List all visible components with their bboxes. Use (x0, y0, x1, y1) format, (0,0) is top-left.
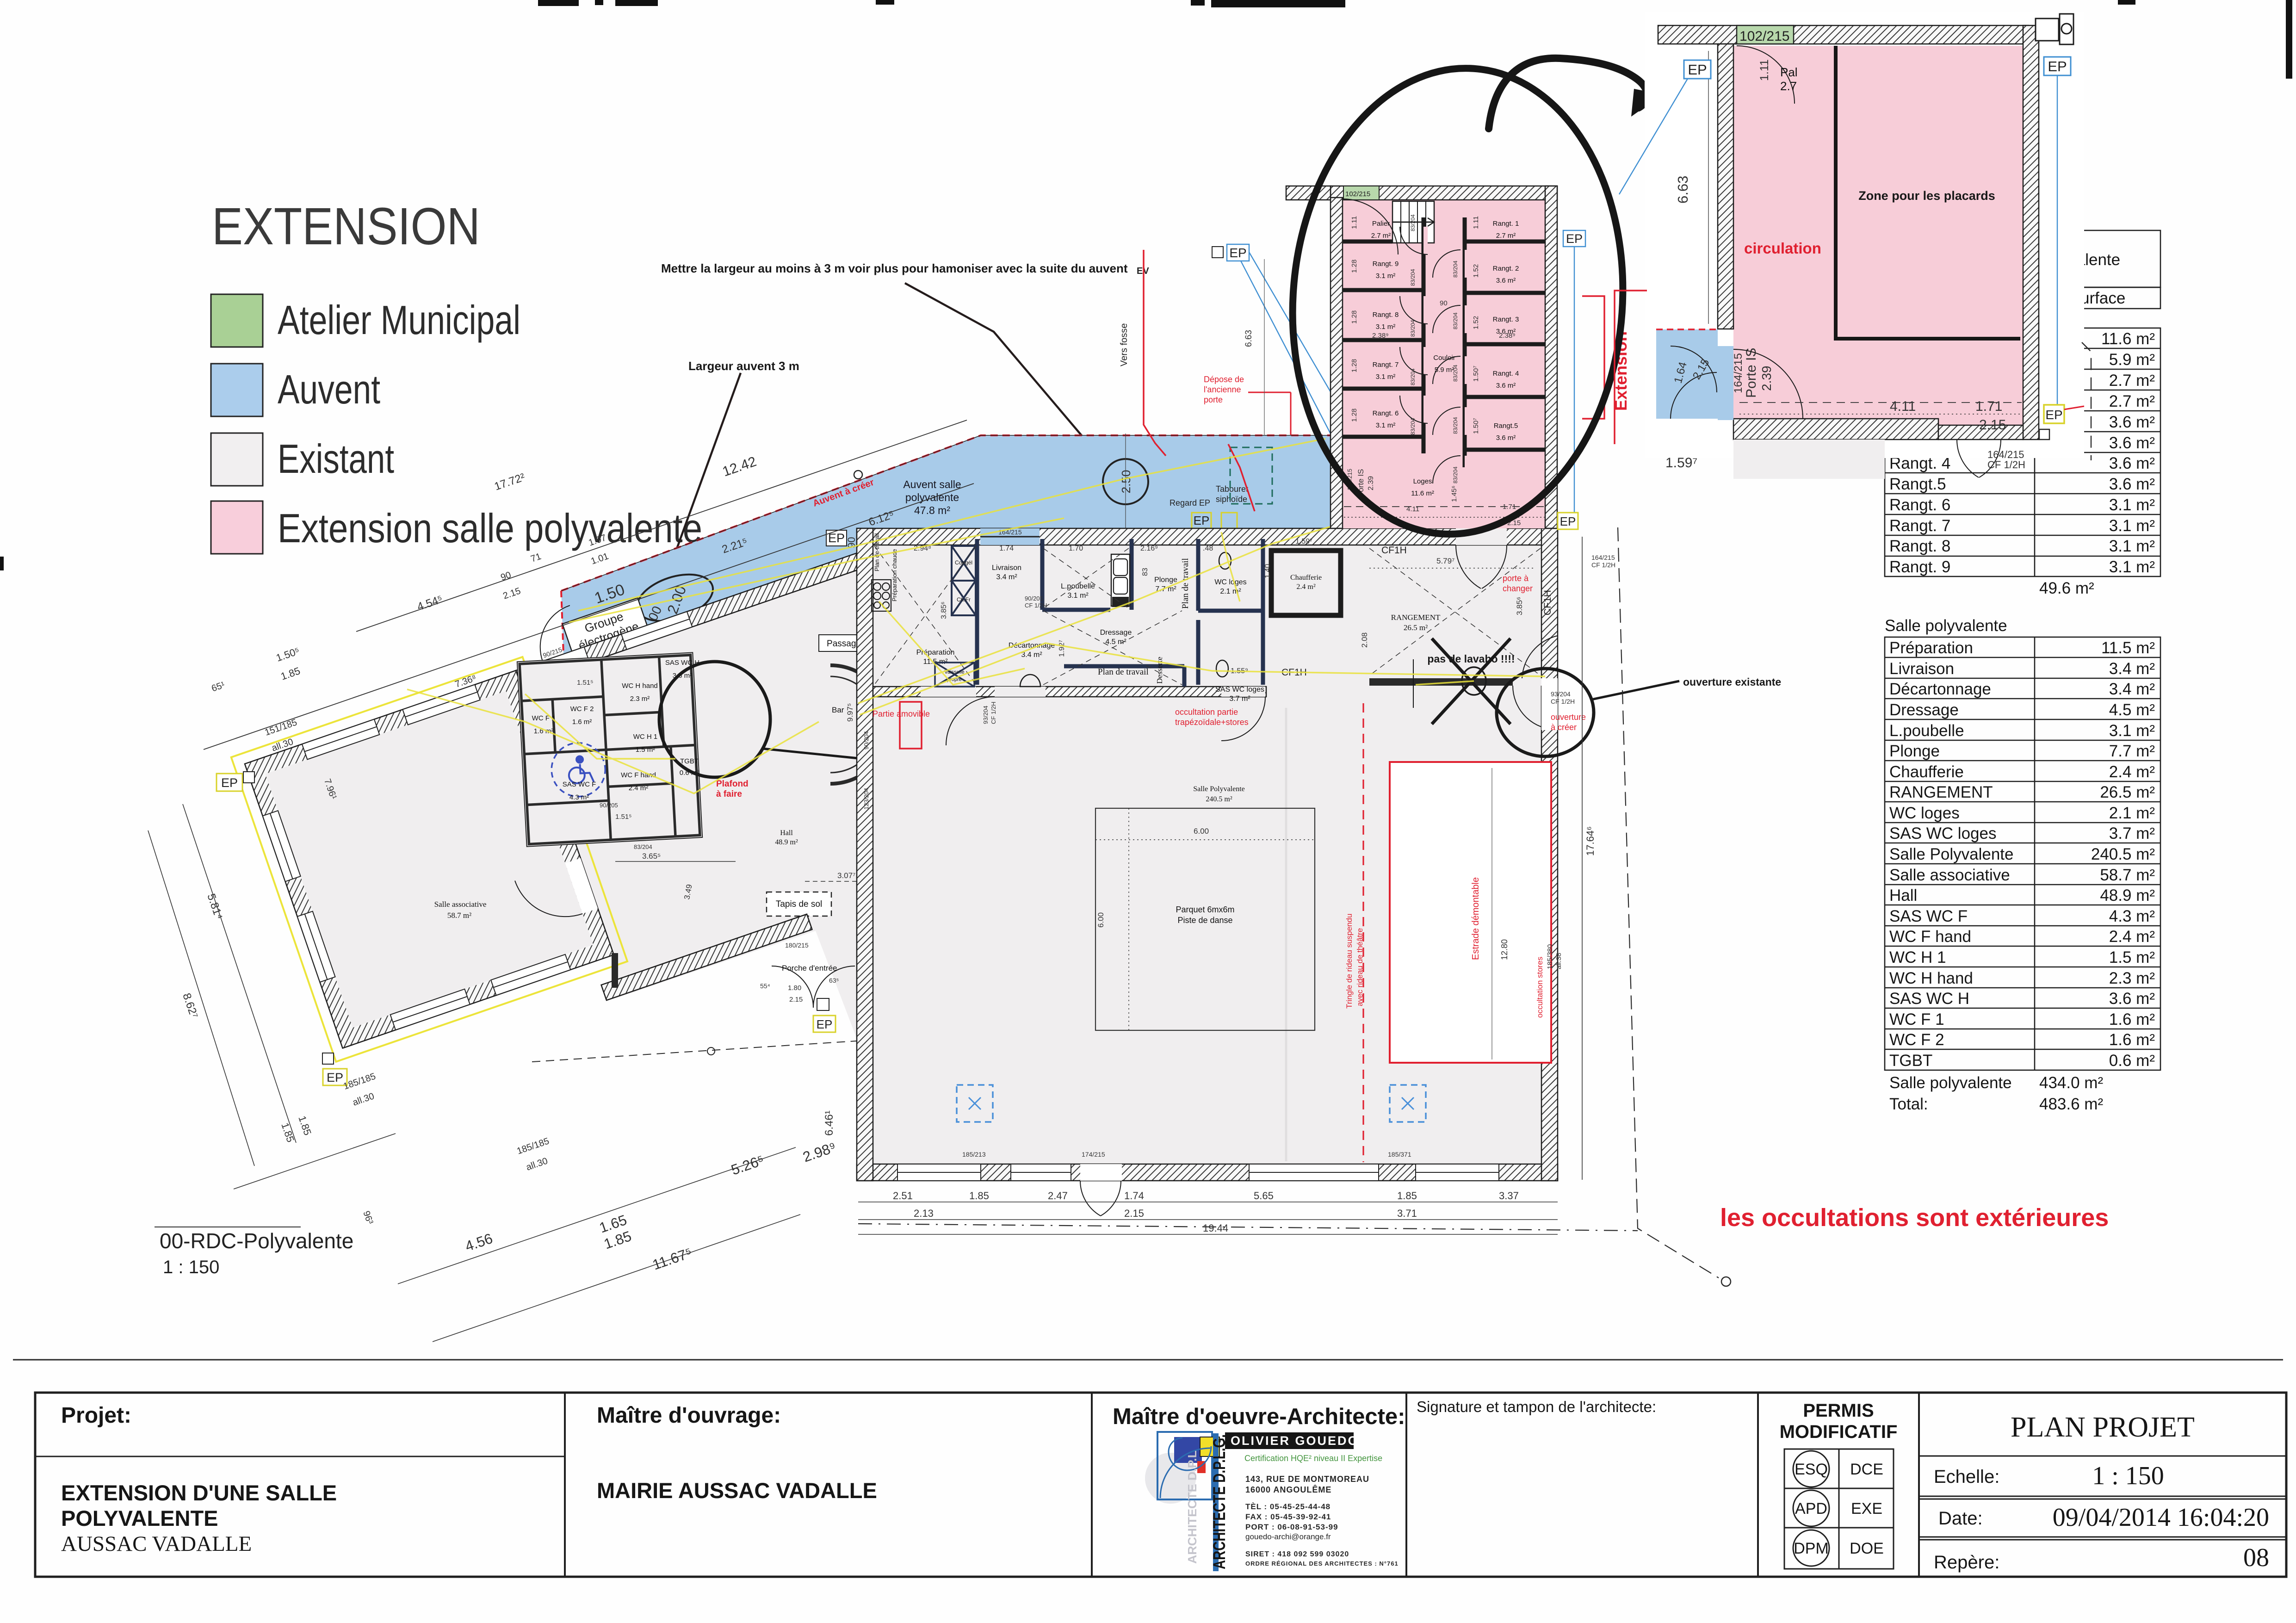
svg-text:2.7: 2.7 (1780, 79, 1797, 93)
svg-text:Rangt.5: Rangt.5 (1889, 475, 1946, 493)
svg-text:AUSSAC VADALLE: AUSSAC VADALLE (61, 1532, 252, 1556)
svg-text:pas de lavabo !!!!: pas de lavabo !!!! (1427, 653, 1515, 665)
svg-text:83/204: 83/204 (1410, 269, 1416, 286)
svg-text:3.1 m²: 3.1 m² (1376, 323, 1396, 331)
svg-text:3.7 m²: 3.7 m² (2109, 824, 2155, 842)
svg-text:93/204: 93/204 (982, 706, 989, 724)
svg-text:Salle polyvalente: Salle polyvalente (1889, 1074, 2012, 1092)
svg-text:83/204: 83/204 (1452, 260, 1459, 278)
svg-text:WC H hand: WC H hand (622, 682, 658, 690)
svg-text:83/204: 83/204 (1452, 417, 1459, 434)
svg-text:WC H 1: WC H 1 (633, 733, 658, 741)
svg-text:6.00: 6.00 (1194, 827, 1209, 836)
svg-text:1.5 m²: 1.5 m² (636, 746, 656, 754)
svg-text:4.3 m²: 4.3 m² (2109, 907, 2155, 925)
svg-text:2.7 m²: 2.7 m² (1371, 232, 1391, 240)
svg-text:EXTENSION D'UNE SALLE: EXTENSION D'UNE SALLE (61, 1481, 337, 1505)
svg-text:Salle Polyvalente: Salle Polyvalente (1889, 845, 2014, 863)
svg-text:83/204: 83/204 (634, 843, 652, 850)
svg-text:Extension salle polyvalente: Extension salle polyvalente (278, 505, 702, 551)
svg-text:3.1 m²: 3.1 m² (1376, 421, 1396, 429)
svg-text:porte à: porte à (1503, 574, 1529, 583)
svg-text:Regard EP: Regard EP (1170, 498, 1210, 508)
svg-text:Total:: Total: (1889, 1095, 1928, 1113)
svg-text:90/204: 90/204 (863, 731, 870, 750)
svg-text:Salle Polyvalente: Salle Polyvalente (1193, 785, 1245, 793)
svg-text:CF1H: CF1H (1542, 590, 1553, 615)
svg-text:ouverture: ouverture (1551, 712, 1586, 722)
svg-text:90/205: 90/205 (600, 802, 618, 809)
svg-text:3.6 m²: 3.6 m² (2109, 990, 2155, 1008)
svg-text:1.28: 1.28 (1350, 260, 1358, 273)
svg-text:1.11: 1.11 (1350, 216, 1358, 229)
svg-text:APD: APD (1795, 1500, 1827, 1518)
svg-text:Tringle de rideau suspendu: Tringle de rideau suspendu (1345, 914, 1354, 1009)
svg-text:1.59⁷: 1.59⁷ (1665, 455, 1697, 471)
svg-text:Tapis de sol: Tapis de sol (776, 899, 822, 909)
svg-text:WC F 2: WC F 2 (570, 705, 594, 713)
svg-text:Plonge: Plonge (1889, 742, 1940, 760)
svg-text:83/204: 83/204 (1410, 320, 1416, 337)
svg-text:1.45⁶: 1.45⁶ (1450, 486, 1458, 502)
svg-text:3.65⁵: 3.65⁵ (642, 852, 661, 861)
svg-text:OLIVIER GOUEDO: OLIVIER GOUEDO (1231, 1434, 1359, 1448)
svg-text:2.50: 2.50 (1119, 470, 1133, 494)
svg-text:5.9 m²: 5.9 m² (2109, 351, 2155, 369)
svg-text:6.46¹: 6.46¹ (823, 1110, 835, 1136)
svg-text:3.85⁶: 3.85⁶ (940, 601, 948, 619)
svg-text:les occultations sont extérieu: les occultations sont extérieures (1720, 1204, 2109, 1232)
svg-text:00-RDC-Polyvalente: 00-RDC-Polyvalente (160, 1229, 353, 1253)
svg-text:1.6 m²: 1.6 m² (2109, 1031, 2155, 1049)
svg-text:Bar: Bar (832, 706, 844, 714)
svg-text:EXTENSION: EXTENSION (212, 197, 480, 255)
svg-text:Rangt. 9: Rangt. 9 (1373, 260, 1399, 268)
svg-text:185/380: 185/380 (1546, 944, 1554, 969)
svg-text:changer: changer (1503, 584, 1533, 593)
svg-text:6.63: 6.63 (1244, 330, 1254, 347)
svg-text:4.11: 4.11 (1890, 399, 1916, 414)
svg-text:Rangt. 2: Rangt. 2 (1493, 265, 1519, 273)
svg-text:Plan de travail: Plan de travail (873, 533, 880, 571)
svg-text:49.6 m²: 49.6 m² (2039, 579, 2094, 597)
svg-text:Maître d'ouvrage:: Maître d'ouvrage: (597, 1403, 781, 1428)
svg-text:Rangt.5: Rangt.5 (1494, 422, 1518, 430)
svg-text:Largeur auvent 3 m: Largeur auvent 3 m (688, 359, 799, 373)
svg-text:164/215: 164/215 (1591, 554, 1615, 561)
svg-text:2.51: 2.51 (893, 1190, 913, 1202)
svg-text:2.38⁹: 2.38⁹ (1372, 332, 1389, 340)
svg-text:11.5 m²: 11.5 m² (2101, 639, 2155, 657)
svg-text:Signature et tampon de l'archi: Signature et tampon de l'architecte: (1417, 1398, 1656, 1415)
svg-text:3.1 m²: 3.1 m² (2109, 496, 2155, 514)
svg-text:Projet:: Projet: (61, 1403, 131, 1428)
svg-text:Décartonnage: Décartonnage (1889, 680, 1991, 698)
svg-text:2.3 m²: 2.3 m² (2109, 969, 2155, 987)
svg-text:19.44: 19.44 (1203, 1222, 1228, 1234)
svg-text:avec rideau de théâtre: avec rideau de théâtre (1355, 928, 1364, 1006)
svg-text:3.4 m²: 3.4 m² (996, 573, 1017, 581)
svg-text:5.65: 5.65 (1254, 1190, 1274, 1202)
svg-text:Rangt. 8: Rangt. 8 (1373, 311, 1399, 319)
svg-text:circulation: circulation (1744, 240, 1821, 257)
svg-text:EXE: EXE (1851, 1500, 1882, 1518)
svg-text:SAS WC loges: SAS WC loges (1215, 686, 1264, 694)
svg-text:3.1 m²: 3.1 m² (2109, 537, 2155, 555)
svg-text:11.6 m²: 11.6 m² (2101, 330, 2155, 348)
svg-text:all.38: all.38 (1555, 953, 1563, 969)
svg-text:Passage: Passage (827, 639, 861, 649)
svg-text:occultation partie: occultation partie (1175, 707, 1238, 717)
svg-text:ORDRE RÉGIONAL DES ARCHITECTES: ORDRE RÉGIONAL DES ARCHITECTES : N°761 (1245, 1560, 1399, 1567)
svg-text:TGBT: TGBT (680, 757, 699, 765)
svg-text:L.poubelle: L.poubelle (1889, 722, 1964, 740)
svg-text:1.11: 1.11 (1758, 59, 1771, 81)
svg-text:83/204: 83/204 (1410, 368, 1416, 385)
svg-text:2.08: 2.08 (1360, 632, 1369, 648)
svg-text:1.50⁷: 1.50⁷ (1472, 418, 1480, 434)
svg-text:Estrade démontable: Estrade démontable (1471, 877, 1481, 960)
svg-text:83/204: 83/204 (1410, 418, 1416, 435)
svg-text:2.7 m²: 2.7 m² (2109, 392, 2155, 410)
svg-text:143, RUE DE MONTMOREAU: 143, RUE DE MONTMOREAU (1245, 1474, 1369, 1484)
svg-text:Zone pour les placards: Zone pour les placards (1858, 189, 1995, 203)
svg-text:1.28: 1.28 (1350, 310, 1358, 324)
svg-text:26.5 m²: 26.5 m² (2100, 783, 2155, 801)
svg-text:1.74: 1.74 (999, 545, 1014, 552)
svg-text:EP: EP (2048, 58, 2067, 74)
svg-text:1 : 150: 1 : 150 (163, 1257, 219, 1277)
svg-text:SAS WC loges: SAS WC loges (1889, 824, 1996, 842)
svg-text:ouverture existante: ouverture existante (1683, 676, 1781, 688)
svg-text:Dépose de: Dépose de (1204, 375, 1244, 384)
svg-text:83: 83 (1141, 568, 1149, 576)
svg-text:EP: EP (1566, 232, 1583, 246)
svg-text:55⁴: 55⁴ (760, 982, 770, 990)
svg-text:CF 1/2H: CF 1/2H (990, 702, 997, 724)
svg-text:Maître d'oeuvre-Architecte:: Maître d'oeuvre-Architecte: (1113, 1404, 1405, 1429)
svg-text:Auvent: Auvent (278, 366, 380, 412)
svg-text:2.4 m²: 2.4 m² (629, 784, 649, 792)
svg-text:2.15: 2.15 (1124, 1208, 1144, 1219)
svg-text:90/205: 90/205 (1025, 595, 1043, 602)
svg-text:83/204: 83/204 (1452, 365, 1459, 382)
svg-text:3.6 m²: 3.6 m² (1496, 434, 1516, 442)
svg-text:Repère:: Repère: (1934, 1552, 1999, 1573)
svg-text:4.3 m²: 4.3 m² (569, 793, 589, 801)
svg-text:TÈL : 05-45-25-44-48: TÈL : 05-45-25-44-48 (1245, 1502, 1331, 1511)
svg-text:CF 1/2H: CF 1/2H (1551, 698, 1575, 705)
svg-text:1.70: 1.70 (1069, 545, 1083, 552)
svg-text:Atelier Municipal: Atelier Municipal (278, 297, 520, 343)
svg-text:Couloir: Couloir (1433, 354, 1455, 362)
svg-text:Date:: Date: (1938, 1508, 1983, 1529)
svg-text:Livraison: Livraison (992, 564, 1021, 572)
svg-text:174/215: 174/215 (1082, 1151, 1105, 1158)
svg-text:ARCHITECTE D.P.L.G.: ARCHITECTE D.P.L.G. (1210, 1434, 1229, 1569)
svg-text:Rangt. 9: Rangt. 9 (1889, 558, 1950, 576)
svg-text:MAIRIE AUSSAC VADALLE: MAIRIE AUSSAC VADALLE (597, 1478, 877, 1503)
svg-text:83/204: 83/204 (1452, 312, 1459, 329)
svg-text:83/204: 83/204 (1410, 214, 1416, 231)
svg-text:WC loges: WC loges (1889, 804, 1960, 822)
svg-text:3.6 m²: 3.6 m² (1496, 277, 1516, 285)
svg-text:Rangt. 7: Rangt. 7 (1889, 517, 1950, 535)
svg-text:PLAN PROJET: PLAN PROJET (2011, 1412, 2195, 1443)
svg-text:Rangt. 6: Rangt. 6 (1889, 496, 1950, 514)
svg-text:3.1 m²: 3.1 m² (2109, 722, 2155, 740)
svg-text:47.8 m²: 47.8 m² (914, 504, 950, 516)
svg-text:1.52: 1.52 (1472, 316, 1480, 329)
svg-text:SAS WC F: SAS WC F (1889, 907, 1968, 925)
svg-text:WC F 1: WC F 1 (1889, 1010, 1944, 1028)
svg-text:11.6 m²: 11.6 m² (1411, 489, 1434, 497)
svg-text:180/215: 180/215 (785, 942, 809, 949)
svg-text:Hall: Hall (1889, 886, 1917, 904)
svg-text:Palier: Palier (1372, 220, 1390, 228)
svg-text:occultation stores: occultation stores (1535, 957, 1544, 1018)
svg-text:1.85: 1.85 (1397, 1190, 1417, 1202)
svg-text:1.50⁷: 1.50⁷ (1472, 365, 1480, 382)
svg-text:EP: EP (221, 776, 238, 790)
svg-text:3.37: 3.37 (1499, 1190, 1519, 1202)
svg-text:Rangt. 6: Rangt. 6 (1373, 409, 1399, 417)
svg-text:90: 90 (1440, 299, 1448, 307)
svg-text:Tabouret: Tabouret (1216, 484, 1248, 494)
svg-text:483.6 m²: 483.6 m² (2039, 1095, 2103, 1113)
svg-text:Dressage: Dressage (1100, 629, 1132, 637)
svg-text:Chaufferie: Chaufferie (1889, 763, 1964, 781)
svg-text:Piste de danse: Piste de danse (1177, 916, 1232, 925)
svg-text:2.15: 2.15 (1979, 417, 2006, 433)
svg-text:DCE: DCE (1850, 1461, 1883, 1478)
svg-text:2.4 m²: 2.4 m² (2109, 928, 2155, 946)
svg-text:Auvent salle: Auvent salle (903, 478, 961, 490)
svg-text:2.39: 2.39 (1759, 366, 1774, 391)
svg-text:EP: EP (1229, 246, 1246, 260)
svg-text:WC F 2: WC F 2 (1889, 1031, 1944, 1049)
svg-text:RANGEMENT: RANGEMENT (1889, 783, 1993, 801)
svg-text:3.1 m²: 3.1 m² (2109, 558, 2155, 576)
svg-text:6.63: 6.63 (1675, 176, 1691, 204)
svg-text:Rangt. 7: Rangt. 7 (1373, 361, 1399, 369)
svg-text:à créer: à créer (1551, 723, 1577, 732)
svg-text:1.5 m²: 1.5 m² (2109, 948, 2155, 966)
svg-text:Chaufferie: Chaufferie (1290, 574, 1322, 582)
svg-text:17.64⁶: 17.64⁶ (1584, 826, 1596, 856)
svg-text:2.1 m²: 2.1 m² (2109, 804, 2155, 822)
svg-text:EP: EP (1688, 62, 1707, 78)
svg-text:gouedo-archi@orange.fr: gouedo-archi@orange.fr (1245, 1532, 1331, 1541)
svg-text:Livraison: Livraison (1889, 660, 1954, 678)
svg-text:2.16⁹: 2.16⁹ (1140, 545, 1158, 552)
svg-text:185/371: 185/371 (1388, 1151, 1411, 1158)
svg-text:48.9 m²: 48.9 m² (775, 838, 798, 846)
svg-text:1.74: 1.74 (1124, 1190, 1144, 1202)
svg-text:3.1 m²: 3.1 m² (2109, 517, 2155, 535)
svg-text:3.4 m²: 3.4 m² (2109, 680, 2155, 698)
svg-text:Salle associative: Salle associative (1889, 866, 2010, 884)
svg-text:DPM: DPM (1794, 1540, 1829, 1557)
svg-text:434.0 m²: 434.0 m² (2039, 1074, 2103, 1092)
svg-text:185/213: 185/213 (962, 1151, 986, 1158)
svg-text:DOE: DOE (1850, 1540, 1884, 1557)
svg-text:2.15: 2.15 (789, 996, 803, 1004)
svg-text:Desserte: Desserte (1155, 657, 1164, 684)
svg-text:3.1 m²: 3.1 m² (1376, 272, 1396, 280)
svg-text:2.7 m²: 2.7 m² (1496, 232, 1516, 240)
svg-text:EP: EP (327, 1071, 343, 1084)
svg-text:Existant: Existant (278, 436, 394, 482)
svg-text:1.6 m²: 1.6 m² (534, 727, 554, 735)
svg-text:siphoïde: siphoïde (1216, 495, 1247, 504)
svg-text:Pal: Pal (1780, 65, 1798, 79)
svg-text:2.47: 2.47 (1048, 1190, 1068, 1202)
svg-text:WC H hand: WC H hand (1889, 969, 1973, 987)
svg-text:102/215: 102/215 (1345, 190, 1370, 198)
svg-text:4.5 m²: 4.5 m² (2109, 701, 2155, 719)
svg-text:Loges: Loges (1413, 477, 1432, 485)
svg-text:WC loges: WC loges (1214, 578, 1246, 586)
svg-text:trapézoïdale+stores: trapézoïdale+stores (1175, 718, 1249, 727)
svg-text:1.6 m²: 1.6 m² (572, 718, 592, 726)
svg-text:3.6 m²: 3.6 m² (2109, 454, 2155, 472)
svg-text:porte: porte (1204, 395, 1223, 404)
svg-text:à faire: à faire (716, 789, 742, 799)
svg-text:3.4 m²: 3.4 m² (2109, 660, 2155, 678)
svg-text:3.85⁶: 3.85⁶ (1515, 597, 1524, 615)
svg-text:2.13: 2.13 (914, 1208, 934, 1219)
svg-text:3.6 m²: 3.6 m² (2109, 475, 2155, 493)
svg-text:Plafond: Plafond (716, 779, 749, 789)
svg-text:1.6 m²: 1.6 m² (2109, 1010, 2155, 1028)
svg-text:SIRET : 418 092 599 03020: SIRET : 418 092 599 03020 (1245, 1550, 1349, 1558)
svg-text:6.00: 6.00 (1096, 912, 1105, 928)
svg-text:3.71: 3.71 (1397, 1208, 1417, 1219)
svg-text:1.28: 1.28 (1350, 359, 1358, 372)
svg-text:Certification HQE² niveau II E: Certification HQE² niveau II Expertise (1244, 1454, 1382, 1463)
svg-text:TGBT: TGBT (1889, 1052, 1932, 1070)
svg-text:3.6 m²: 3.6 m² (2109, 413, 2155, 431)
svg-text:5.79⁷: 5.79⁷ (1436, 557, 1454, 565)
svg-text:CF 1/2H: CF 1/2H (1591, 561, 1615, 569)
svg-text:Porche d'entrée: Porche d'entrée (782, 964, 837, 973)
svg-text:EP: EP (1194, 514, 1210, 527)
svg-text:WC F hand: WC F hand (1889, 928, 1971, 946)
svg-text:Echelle:: Echelle: (1934, 1467, 1999, 1487)
svg-text:2.39: 2.39 (1367, 476, 1375, 490)
svg-text:1.28: 1.28 (1350, 409, 1358, 422)
svg-text:7.7 m²: 7.7 m² (1155, 585, 1176, 593)
svg-text:Plonge: Plonge (1154, 576, 1177, 584)
svg-text:2.38⁹: 2.38⁹ (1499, 332, 1516, 340)
svg-text:Salle associative: Salle associative (434, 900, 487, 909)
svg-text:63⁵: 63⁵ (829, 977, 839, 984)
svg-text:26.5 m²: 26.5 m² (1404, 623, 1428, 632)
svg-text:3.7 m²: 3.7 m² (1229, 695, 1250, 703)
svg-text:EP: EP (1560, 514, 1576, 528)
svg-text:Plan de travail: Plan de travail (1098, 667, 1149, 677)
svg-text:1.52: 1.52 (1472, 264, 1480, 278)
svg-text:Porte IS: Porte IS (1744, 348, 1759, 398)
svg-text:1.51⁵: 1.51⁵ (577, 679, 593, 687)
svg-text:1.85: 1.85 (969, 1190, 989, 1202)
svg-text:Hall: Hall (780, 829, 793, 837)
svg-text:93/204: 93/204 (1551, 690, 1571, 698)
svg-text:3.6 m²: 3.6 m² (1496, 382, 1516, 390)
svg-text:PORT : 06-08-91-53-99: PORT : 06-08-91-53-99 (1245, 1523, 1338, 1531)
svg-text:3.6 m²: 3.6 m² (2109, 434, 2155, 452)
svg-text:58.7 m²: 58.7 m² (447, 911, 471, 920)
svg-text:123/204: 123/204 (863, 788, 870, 810)
svg-text:1.59⁷: 1.59⁷ (1295, 538, 1312, 545)
svg-text:Plan de travail: Plan de travail (1181, 558, 1190, 609)
svg-text:1.40: 1.40 (1264, 564, 1272, 578)
svg-text:1.11: 1.11 (1472, 216, 1480, 229)
svg-text:Mettre la largeur au moins à 3: Mettre la largeur au moins à 3 m voir pl… (661, 261, 1128, 275)
svg-text:Salle polyvalente: Salle polyvalente (1885, 617, 2007, 635)
svg-text:3.4 m²: 3.4 m² (1021, 651, 1042, 659)
svg-text:SAS WC F: SAS WC F (563, 781, 596, 788)
svg-text:Rangt. 8: Rangt. 8 (1889, 537, 1950, 555)
svg-text:EP: EP (2045, 408, 2062, 422)
svg-text:08: 08 (2243, 1543, 2269, 1572)
svg-text:SAS WC H: SAS WC H (1889, 990, 1969, 1008)
svg-text:3.07⁷: 3.07⁷ (837, 871, 855, 880)
svg-text:Dressage: Dressage (1889, 701, 1959, 719)
svg-text:83/204: 83/204 (1452, 466, 1459, 483)
svg-text:12.80: 12.80 (1500, 939, 1509, 960)
svg-text:58.7 m²: 58.7 m² (2100, 866, 2155, 884)
svg-text:Parquet 6mx6m: Parquet 6mx6m (1176, 905, 1234, 914)
svg-text:Préparation chaude: Préparation chaude (891, 549, 898, 601)
svg-text:.48: .48 (1203, 545, 1213, 552)
svg-text:3.1 m²: 3.1 m² (1067, 592, 1089, 600)
svg-text:CF1H: CF1H (1381, 545, 1407, 556)
svg-text:102/215: 102/215 (1739, 29, 1789, 44)
svg-text:2.7 m²: 2.7 m² (2109, 372, 2155, 390)
svg-text:164/215: 164/215 (1732, 353, 1745, 393)
svg-text:Rangt. 4: Rangt. 4 (1493, 370, 1519, 378)
svg-text:ARCHITECTE D.P.L: ARCHITECTE D.P.L (1185, 1450, 1199, 1564)
svg-text:7.7 m²: 7.7 m² (2109, 742, 2155, 760)
svg-text:16000 ANGOULÊME: 16000 ANGOULÊME (1245, 1485, 1331, 1494)
svg-text:FAX : 05-45-39-92-41: FAX : 05-45-39-92-41 (1245, 1512, 1331, 1521)
svg-text:RANGEMENT: RANGEMENT (1391, 613, 1441, 622)
svg-text:2.4 m²: 2.4 m² (1296, 583, 1315, 591)
svg-text:Préparation: Préparation (1889, 639, 1973, 657)
svg-text:2.3 m²: 2.3 m² (630, 695, 650, 703)
svg-text:polyvalente: polyvalente (905, 491, 959, 503)
svg-text:1 : 150: 1 : 150 (2092, 1462, 2164, 1490)
svg-text:EP: EP (817, 1017, 833, 1031)
svg-text:Vers fosse: Vers fosse (1119, 323, 1129, 366)
svg-text:POLYVALENTE: POLYVALENTE (61, 1506, 218, 1530)
svg-text:ESQ: ESQ (1795, 1461, 1828, 1478)
svg-text:48.9 m²: 48.9 m² (2100, 886, 2155, 904)
svg-text:Ch.Fr: Ch.Fr (957, 596, 971, 603)
svg-text:240.5 m²: 240.5 m² (2091, 845, 2155, 863)
svg-text:1.80: 1.80 (788, 984, 801, 992)
svg-text:MODIFICATIF: MODIFICATIF (1780, 1422, 1898, 1442)
svg-text:1.92⁷: 1.92⁷ (1058, 640, 1066, 657)
svg-text:3.1 m²: 3.1 m² (1376, 373, 1396, 381)
svg-text:Rangt. 1: Rangt. 1 (1493, 220, 1519, 228)
svg-text:PERMIS: PERMIS (1803, 1400, 1874, 1421)
svg-text:CF 1/2H: CF 1/2H (1025, 602, 1047, 609)
svg-text:0.6 m²: 0.6 m² (2109, 1052, 2155, 1070)
svg-text:WC H 1: WC H 1 (1889, 948, 1946, 966)
